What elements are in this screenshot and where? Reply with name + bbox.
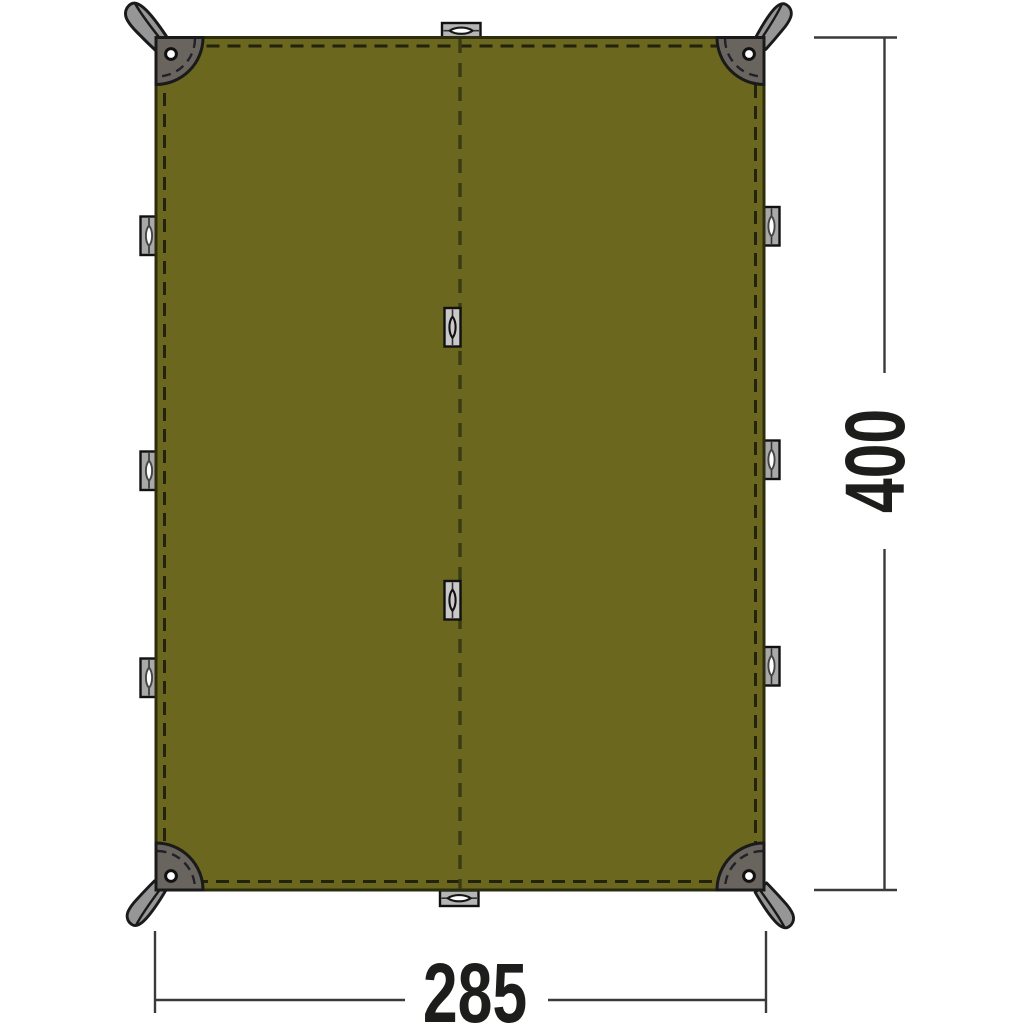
svg-text:400: 400 bbox=[828, 409, 922, 513]
svg-text:285: 285 bbox=[423, 946, 527, 1024]
